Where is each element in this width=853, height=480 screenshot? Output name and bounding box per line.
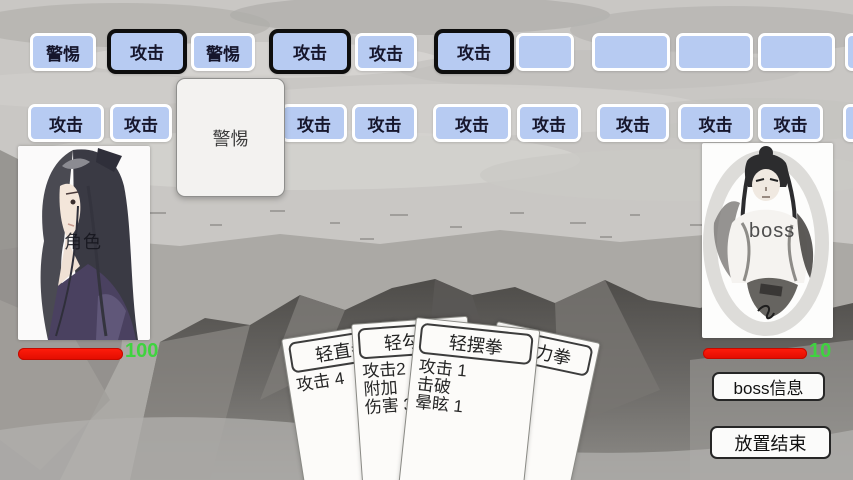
- player-hp-value: 100: [125, 340, 158, 363]
- attack-button[interactable]: 攻击: [281, 104, 347, 142]
- boss-hp-value: 10: [809, 340, 831, 363]
- boss-name-overlay: boss: [749, 220, 795, 243]
- game-stage: 警惕 攻击 警惕 攻击 攻击 攻击 攻击 攻击 攻击 攻击 攻击 攻击 攻击 攻…: [0, 0, 853, 480]
- slot-button-empty[interactable]: [845, 33, 853, 71]
- attack-button[interactable]: 攻击: [597, 104, 669, 142]
- attack-button[interactable]: 攻击: [517, 104, 581, 142]
- boss-info-button[interactable]: boss信息: [712, 372, 825, 401]
- attack-button[interactable]: 攻击: [28, 104, 104, 142]
- slot-button-empty[interactable]: [676, 33, 753, 71]
- slot-button-selected[interactable]: 攻击: [434, 29, 514, 74]
- attack-button[interactable]: 攻击: [678, 104, 753, 142]
- player-name-overlay: 角色: [64, 228, 102, 254]
- attack-button[interactable]: 攻击: [843, 104, 853, 142]
- attack-button[interactable]: 攻击: [352, 104, 417, 142]
- boss-hp-bar: [703, 348, 807, 359]
- attack-button[interactable]: 攻击: [433, 104, 511, 142]
- slot-button-selected[interactable]: 攻击: [107, 29, 187, 74]
- card-body: 攻击 1 击破 晕眩 1: [407, 355, 535, 426]
- attack-button[interactable]: 攻击: [758, 104, 823, 142]
- end-placement-button[interactable]: 放置结束: [710, 426, 831, 459]
- slot-button-empty[interactable]: [758, 33, 835, 71]
- slot-button-empty[interactable]: [592, 33, 670, 71]
- vigilance-token-popup[interactable]: 警惕: [176, 78, 285, 197]
- player-hp-bar: [18, 348, 123, 360]
- attack-button[interactable]: 攻击: [110, 104, 172, 142]
- slot-button-empty[interactable]: [516, 33, 574, 71]
- slot-button[interactable]: 警惕: [30, 33, 96, 71]
- slot-button-selected[interactable]: 攻击: [269, 29, 351, 74]
- slot-button[interactable]: 警惕: [191, 33, 255, 71]
- slot-button[interactable]: 攻击: [355, 33, 417, 71]
